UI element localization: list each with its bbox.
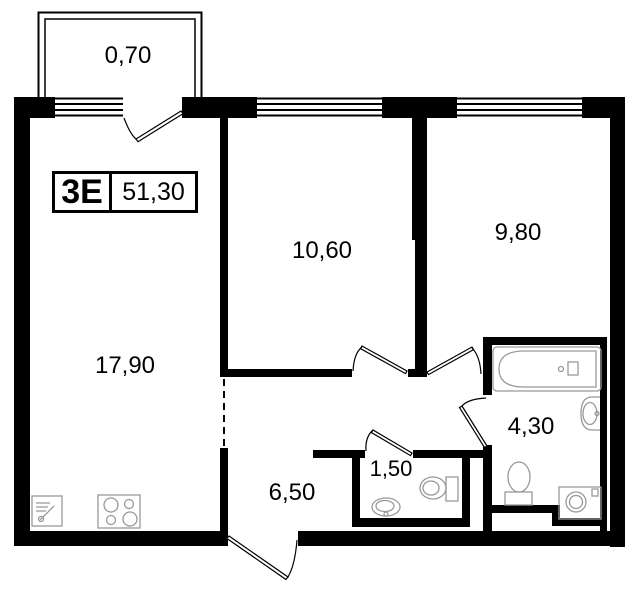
window-bedroom1 (257, 99, 382, 116)
wall-bedrooms-stub (408, 369, 427, 377)
washing-machine (559, 487, 601, 519)
bathroom-door (460, 398, 488, 448)
walls (14, 97, 625, 547)
wc-door (366, 430, 412, 456)
wall-hallway-left (220, 448, 228, 531)
bedroom1-door-swing-arc (353, 347, 362, 371)
balcony-door-swing-arc (124, 118, 136, 139)
entrance-door (227, 536, 297, 579)
wall-wc-left (352, 450, 360, 527)
bedroom1-door-leaf (361, 346, 408, 374)
bathroom-door-leaf (460, 406, 488, 448)
wall-bathroom-bottom (492, 505, 560, 513)
wall-wc-top-right (413, 450, 485, 458)
wall-wc-right (462, 458, 470, 518)
window-balcony (55, 99, 123, 116)
stove (98, 495, 140, 528)
wall-top-4 (582, 97, 625, 118)
bedroom2-door-leaf (427, 347, 474, 375)
wc-door-leaf (372, 430, 413, 456)
wall-bottom-right (298, 531, 625, 546)
bedroom2-area-label: 9,80 (495, 219, 542, 247)
wall-left (14, 97, 30, 546)
wall-hallway-top (220, 369, 352, 377)
bathtub (493, 347, 601, 391)
entrance-door-swing-arc (288, 540, 297, 577)
balcony-area-label: 0,70 (105, 42, 152, 70)
floor-plan-drawing (0, 0, 641, 600)
floor-plan: 0,70 17,90 10,60 9,80 4,30 1,50 6,50 3Е … (0, 0, 641, 600)
wall-wc-bottom (352, 518, 470, 527)
bathroom-area-label: 4,30 (508, 413, 555, 441)
window-bedroom2 (457, 99, 582, 116)
kitchen-sink (32, 496, 62, 526)
wall-bathroom-top (483, 337, 607, 345)
windows (55, 99, 582, 116)
bedroom2-door-swing-arc (472, 348, 481, 374)
wall-bathroom-left-upper (483, 337, 492, 395)
wc-area-label: 1,50 (370, 456, 413, 482)
unit-info-box: 3Е 51,30 (52, 171, 198, 213)
bathroom-toilet (505, 462, 532, 505)
wall-bedrooms-upper (412, 118, 427, 240)
balcony-door-leaf (136, 111, 183, 142)
bedroom1-area-label: 10,60 (292, 237, 352, 265)
wall-living-bedroom1 (220, 118, 228, 377)
wall-top-2 (182, 97, 257, 118)
unit-type-label: 3Е (55, 174, 112, 210)
bathroom-sink (581, 397, 600, 430)
wall-right (610, 118, 625, 547)
entrance-door-leaf (227, 536, 288, 579)
living-kitchen-area-label: 17,90 (95, 352, 155, 380)
bathroom-door-swing-arc (462, 398, 486, 406)
wc-toilet (420, 477, 458, 501)
wall-bedrooms-lower (415, 240, 427, 369)
wall-bottom-left (14, 531, 228, 546)
wall-top-3 (382, 97, 457, 118)
wc-sink (372, 498, 400, 516)
hallway-area-label: 6,50 (269, 479, 316, 507)
unit-total-area-label: 51,30 (112, 174, 195, 210)
balcony-door (124, 111, 183, 142)
bedroom1-door (353, 346, 407, 374)
bedroom2-door (427, 347, 481, 375)
